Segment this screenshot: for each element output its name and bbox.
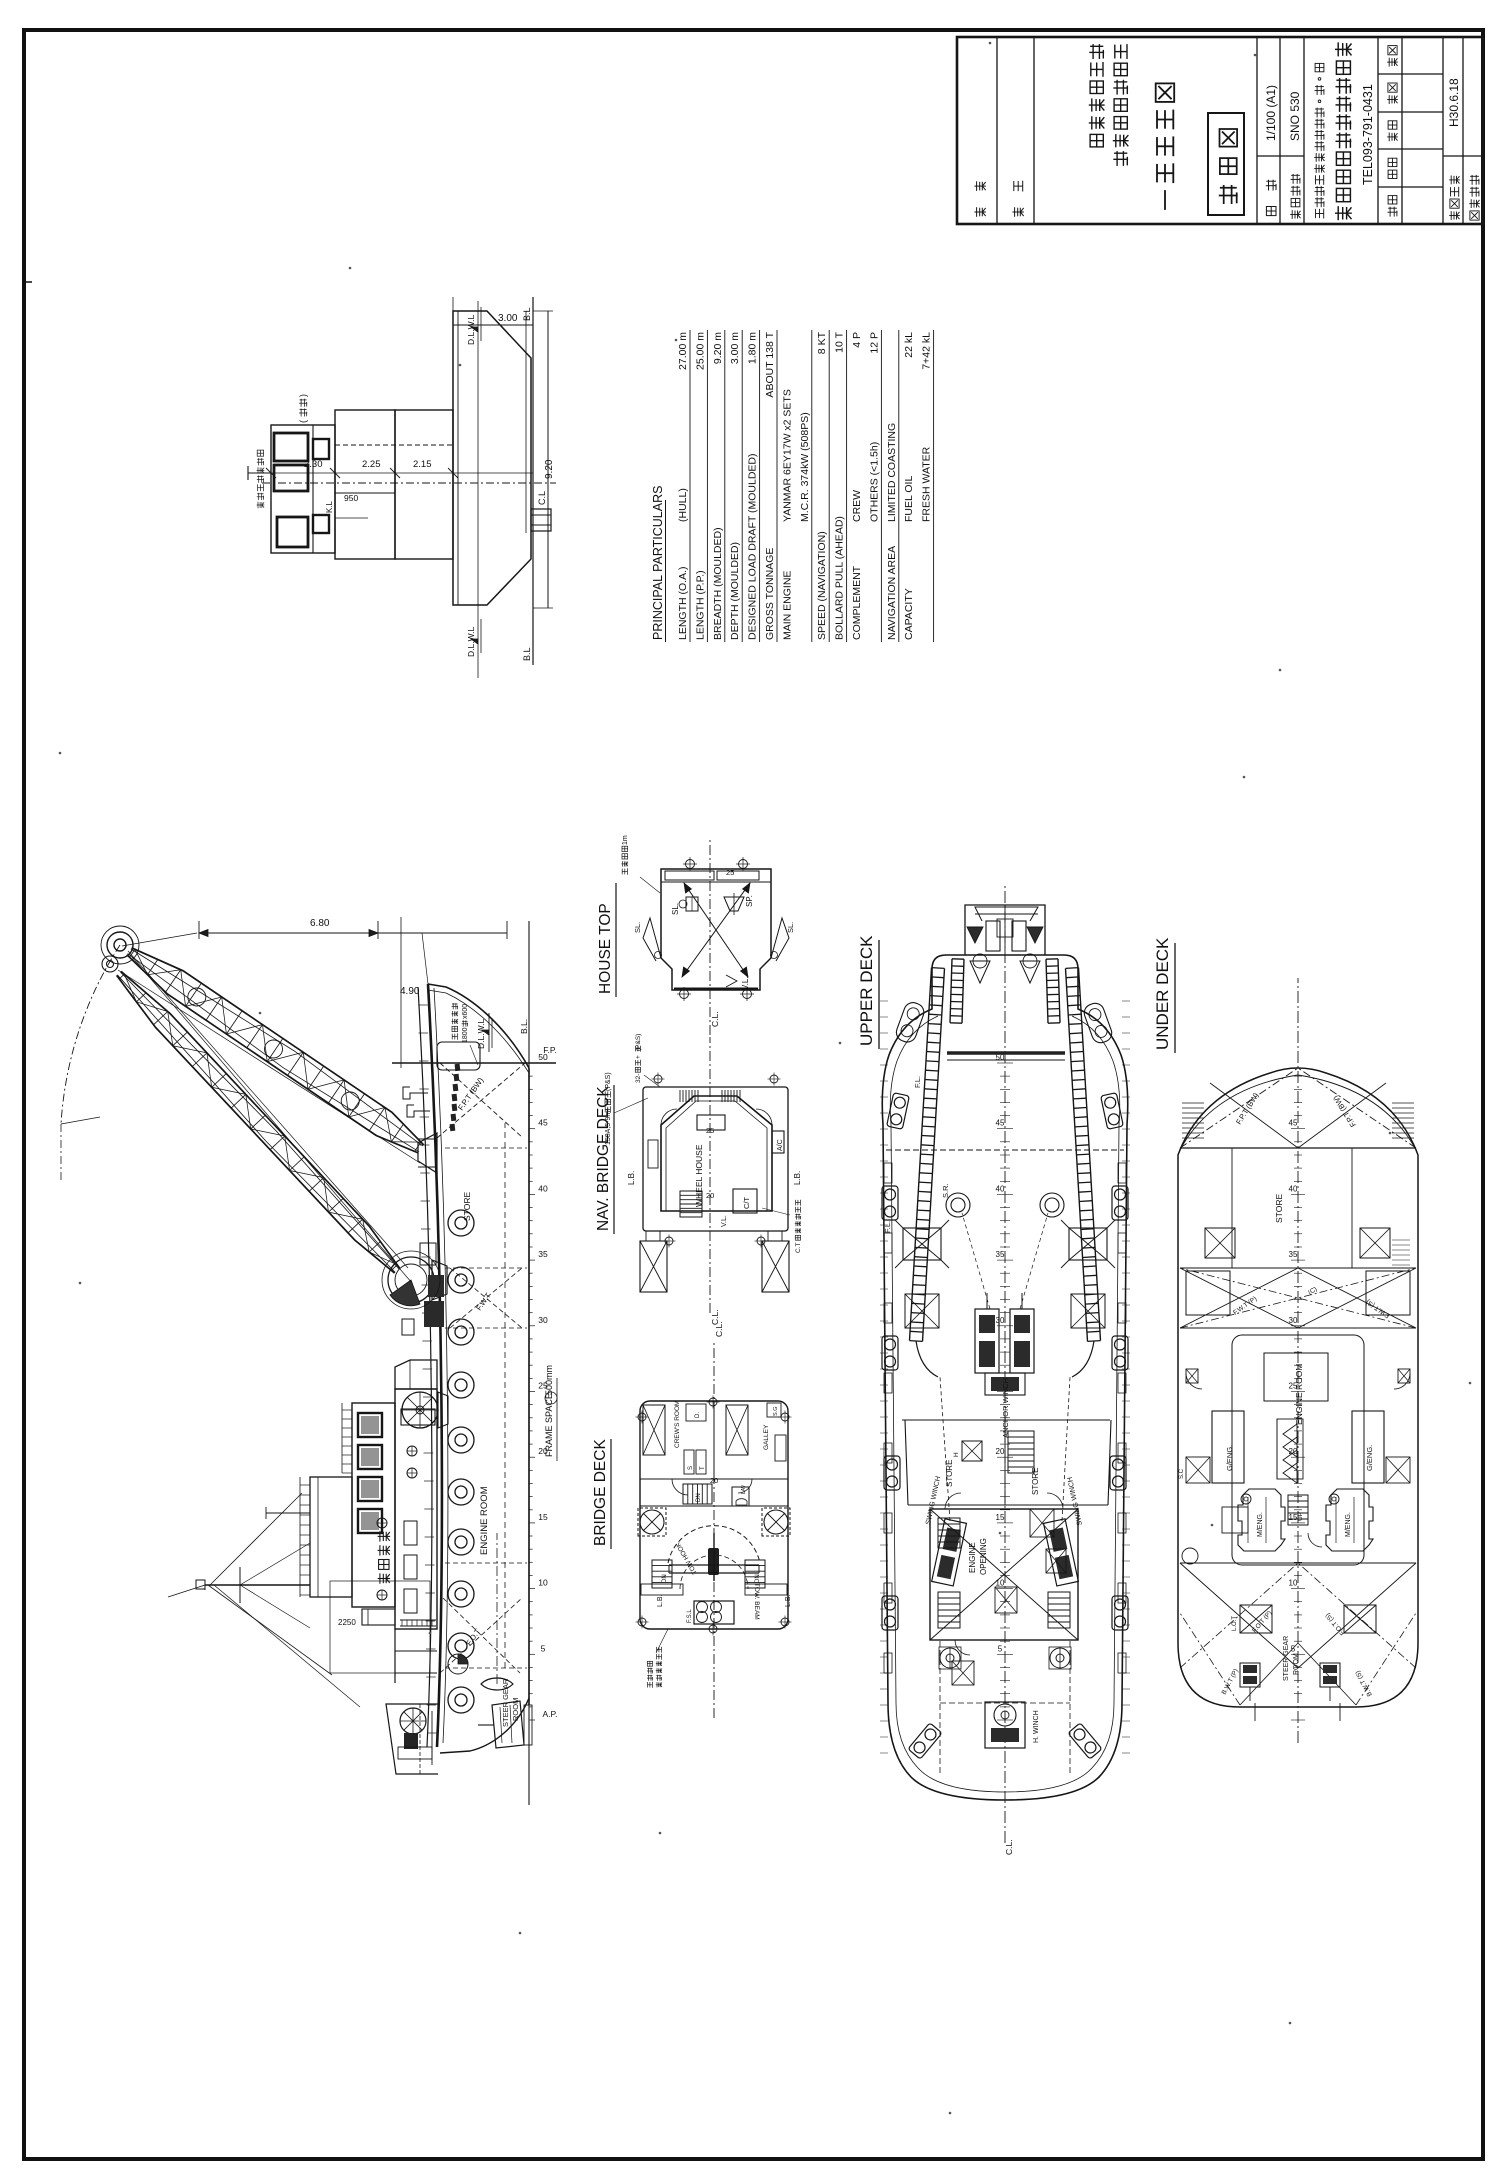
svg-text:V.L.: V.L. [741,977,750,991]
svg-text:45: 45 [538,1118,548,1128]
svg-text:10 T: 10 T [834,331,846,352]
svg-text:T: T [700,1466,706,1470]
svg-text:(P&S): (P&S) [605,1072,612,1091]
svg-text:ENGINE ROOM: ENGINE ROOM [1294,1364,1304,1425]
svg-text:LAV: LAV [741,1484,747,1494]
svg-text:LIMITED COASTING: LIMITED COASTING [886,423,898,522]
svg-text:S.R.: S.R. [941,1183,950,1198]
svg-text:4.90: 4.90 [400,986,420,997]
svg-text:500mm: 500mm [544,1365,554,1395]
svg-text:FRESH WATER: FRESH WATER [921,446,933,522]
svg-text:HOUSE TOP: HOUSE TOP [597,903,614,994]
svg-text:G/ENG.: G/ENG. [1225,1445,1234,1471]
svg-text:9.20 m: 9.20 m [712,332,724,364]
svg-text:SL.: SL. [786,922,795,933]
svg-text:BRIDGE DECK: BRIDGE DECK [592,1439,609,1546]
svg-text:M/ENG.: M/ENG. [1257,1512,1264,1537]
svg-text:LENGTH (P.P.): LENGTH (P.P.) [694,570,706,640]
svg-text:DN: DN [696,1493,702,1502]
svg-text:40: 40 [996,1184,1005,1193]
svg-text:A.P.: A.P. [543,1709,558,1719]
svg-text:OTHERS (<1.5h): OTHERS (<1.5h) [868,442,880,522]
svg-text:F.S.L: F.S.L [687,1609,693,1623]
svg-text:3.00 m: 3.00 m [729,332,741,364]
svg-text:H. WINCH: H. WINCH [1033,1710,1040,1743]
svg-text:+: + [635,1055,642,1059]
svg-text:M.C.R. 374kW (508PS): M.C.R. 374kW (508PS) [799,412,811,522]
svg-text:35: 35 [538,1249,548,1259]
svg-text:L.B.: L.B. [657,1594,664,1607]
svg-text:1/100 (A1): 1/100 (A1) [1264,85,1278,141]
svg-text:25.00 m: 25.00 m [694,332,706,370]
svg-text:10: 10 [538,1578,548,1588]
svg-text:BREADTH (MOULDED): BREADTH (MOULDED) [712,527,724,640]
svg-text:45: 45 [1289,1119,1298,1128]
svg-text:5: 5 [998,1644,1003,1653]
svg-text:STORE: STORE [1031,1468,1040,1495]
svg-text:C.L: C.L [537,491,547,505]
svg-text:4 P: 4 P [851,332,863,348]
svg-text:10: 10 [996,1579,1005,1588]
svg-text:30: 30 [996,1316,1005,1325]
svg-text:ANCHOR WINCH: ANCHOR WINCH [1001,1378,1010,1438]
svg-text:K.L: K.L [325,500,334,513]
svg-text:STEER GEAR: STEER GEAR [1283,1636,1290,1681]
svg-text:ROOM: ROOM [1293,1653,1300,1675]
svg-text:B.L: B.L [522,307,532,321]
svg-text:STORE: STORE [1274,1194,1284,1223]
svg-text:FRAME SPACE: FRAME SPACE [544,1393,554,1457]
svg-text:32-: 32- [635,1074,642,1083]
svg-text:35: 35 [996,1250,1005,1259]
svg-text:2.25: 2.25 [362,459,381,470]
svg-text:2250: 2250 [338,1618,356,1627]
svg-text:(: ( [298,420,308,423]
svg-text:S.G: S.G [773,1407,779,1416]
svg-text:NAVIGATION AREA: NAVIGATION AREA [886,546,898,640]
svg-text:L.B.: L.B. [627,1171,636,1185]
svg-text:SPEED (NAVIGATION): SPEED (NAVIGATION) [816,531,828,640]
svg-text:CREW: CREW [851,490,863,522]
svg-text:L.B.: L.B. [793,1171,802,1185]
svg-text:5: 5 [541,1643,546,1653]
svg-text:B.L.: B.L. [519,1019,529,1034]
svg-text:A/C: A/C [777,1139,784,1151]
svg-text:DN: DN [755,1574,761,1583]
svg-text:3.00: 3.00 [498,313,518,324]
svg-text:G/ENG.: G/ENG. [1365,1445,1374,1471]
svg-text:B.L: B.L [522,647,532,661]
svg-text:BOLLARD PULL (AHEAD): BOLLARD PULL (AHEAD) [834,516,846,640]
svg-text:20: 20 [710,1476,718,1485]
svg-text:35: 35 [1289,1250,1298,1259]
svg-text:COMPLEMENT: COMPLEMENT [851,565,863,640]
svg-text:CAPACITY: CAPACITY [903,588,915,640]
svg-text:V.L.: V.L. [721,1215,728,1227]
svg-text:950: 950 [344,493,358,503]
svg-text:25: 25 [726,868,734,877]
svg-text:L.B.: L.B. [785,1594,792,1607]
svg-text:YANMAR 6EY17W x2 SETS: YANMAR 6EY17W x2 SETS [781,389,793,522]
svg-text:40: 40 [1289,1184,1298,1193]
svg-text:D.: D. [695,1412,701,1418]
svg-text:27.00 m: 27.00 m [677,332,689,370]
svg-text:UP: UP [1297,1512,1304,1521]
svg-text:20: 20 [706,1191,714,1200]
svg-text:DESIGNED LOAD DRAFT (MOULDED): DESIGNED LOAD DRAFT (MOULDED) [747,454,759,641]
svg-text:ENGINE: ENGINE [968,1542,977,1573]
svg-text:F.L.: F.L. [883,1221,892,1233]
svg-text:9.20: 9.20 [544,459,555,479]
svg-text:DN: DN [662,1574,668,1583]
svg-text:MAIN ENGINE: MAIN ENGINE [781,571,793,640]
svg-text:SL.: SL. [671,903,680,915]
svg-text:SP.: SP. [745,895,754,907]
svg-text:LENGTH (O.A.): LENGTH (O.A.) [677,566,689,640]
svg-text:GROSS TONNAGE: GROSS TONNAGE [764,548,776,640]
svg-text:x600: x600 [462,1004,469,1019]
svg-text:FUEL OIL: FUEL OIL [903,476,915,522]
svg-text:ENGINE ROOM: ENGINE ROOM [479,1486,490,1555]
svg-text:NAV. BRIDGE DECK: NAV. BRIDGE DECK [595,1086,612,1231]
svg-text:D.L.W.L: D.L.W.L [476,1018,486,1049]
svg-text:C.L.: C.L. [714,1321,724,1337]
svg-text:H: H [953,1452,960,1457]
svg-text:25: 25 [706,1126,714,1135]
svg-text:H30.6.18: H30.6.18 [1447,78,1461,127]
svg-text:1800: 1800 [462,1027,469,1043]
svg-text:15: 15 [538,1512,548,1522]
svg-text:STORE: STORE [945,1460,954,1487]
svg-text:): ) [298,394,308,397]
svg-text:12 P: 12 P [868,332,880,354]
svg-text:STORE: STORE [462,1192,472,1221]
svg-text:PRINCIPAL PARTICULARS: PRINCIPAL PARTICULARS [651,486,665,640]
svg-text:S: S [688,1466,694,1470]
svg-text:UPPER DECK: UPPER DECK [857,935,876,1046]
svg-text:1m: 1m [622,835,629,845]
svg-text:F.L.: F.L. [913,1076,922,1088]
svg-text:(HULL): (HULL) [677,488,689,522]
svg-text:(P&S): (P&S) [635,1034,642,1051]
svg-text:40: 40 [538,1183,548,1193]
svg-text:TEL093-791-0431: TEL093-791-0431 [1361,84,1375,185]
svg-text:S.C: S.C [1179,1468,1185,1479]
svg-text:8 KT: 8 KT [816,331,828,354]
svg-text:ABOUT 138 T: ABOUT 138 T [764,331,776,397]
svg-text:F.P.: F.P. [543,1045,557,1055]
svg-text:22 kL: 22 kL [903,332,915,358]
svg-text:CREW'S ROOM: CREW'S ROOM [674,1401,681,1448]
svg-text:150A,5-9m: 150A,5-9m [605,1111,612,1145]
svg-text:2.15: 2.15 [413,459,432,470]
svg-text:6.80: 6.80 [310,918,330,929]
svg-text:45: 45 [996,1119,1005,1128]
svg-text:SL.: SL. [633,922,642,933]
svg-text:UNDER DECK: UNDER DECK [1153,937,1172,1050]
svg-text:C.L.: C.L. [710,1011,720,1027]
svg-text:SNO 530: SNO 530 [1288,91,1302,141]
svg-text:30: 30 [538,1315,548,1325]
svg-text:DEPTH (MOULDED): DEPTH (MOULDED) [729,542,741,640]
svg-text:M/ENG.: M/ENG. [1345,1512,1352,1537]
svg-text:C.T: C.T [795,1243,802,1254]
svg-text:GALLEY: GALLEY [763,1424,770,1450]
svg-text:OPENING: OPENING [979,1538,988,1575]
svg-text:C.L.: C.L. [1004,1839,1014,1855]
svg-text:1.80 m: 1.80 m [747,332,759,364]
svg-text:TOW. BEAM: TOW. BEAM [753,1583,760,1620]
svg-text:WHEEL HOUSE: WHEEL HOUSE [694,1144,704,1207]
svg-text:15: 15 [996,1513,1005,1522]
svg-text:L.O.T: L.O.T [1232,1616,1238,1631]
svg-text:10: 10 [1289,1579,1298,1588]
svg-text:20: 20 [996,1447,1005,1456]
svg-text:2.30: 2.30 [304,459,323,470]
svg-text:7+42 kL: 7+42 kL [921,332,933,370]
svg-text:C/T: C/T [742,1197,751,1210]
